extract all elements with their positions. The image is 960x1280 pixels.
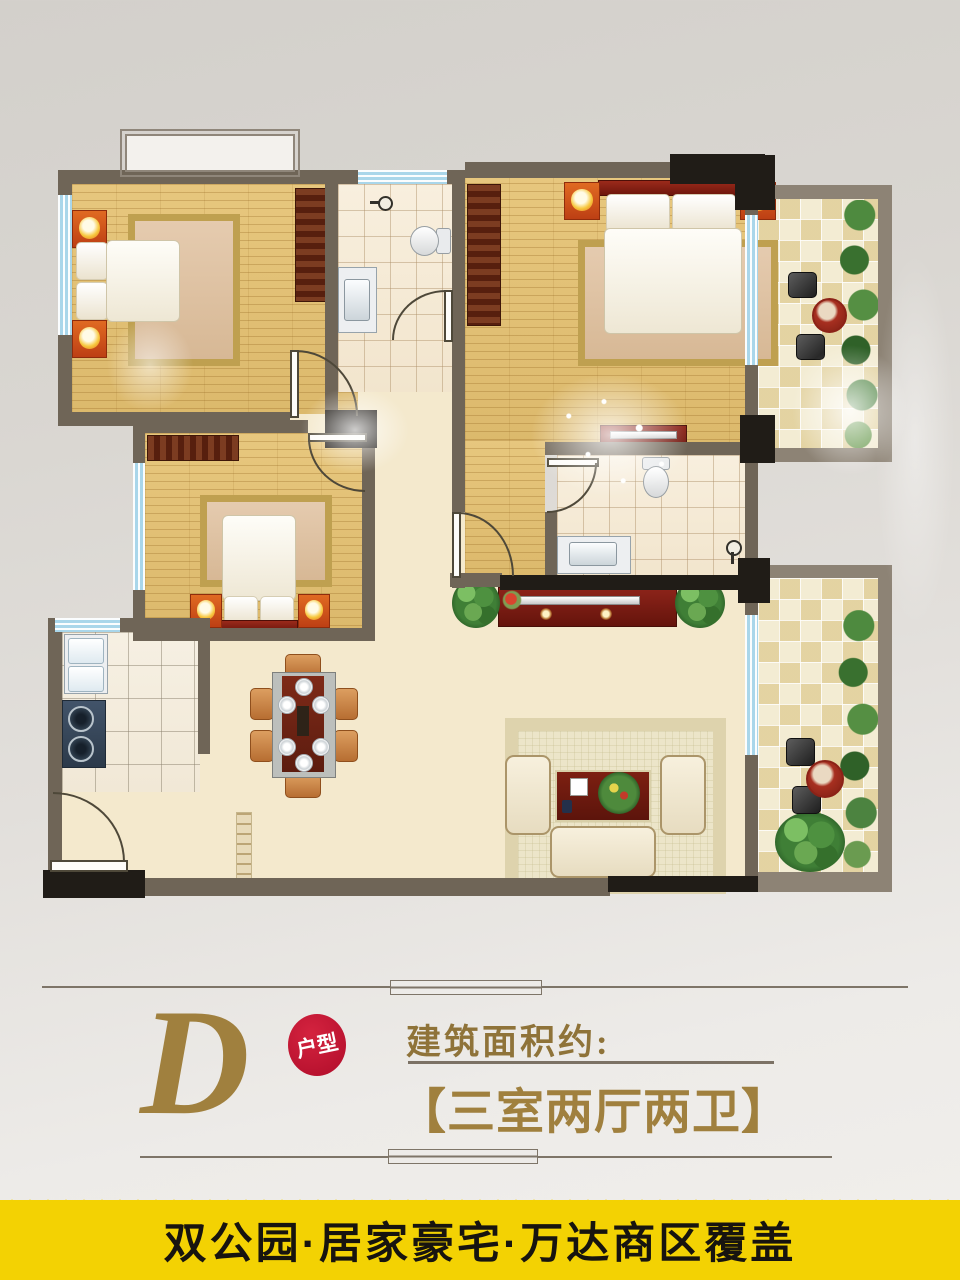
unit-letter: D [140,990,250,1134]
dining-chair [250,730,274,762]
double-bed [222,515,296,601]
plate [278,696,296,714]
armchair [660,755,706,835]
shower-head-icon [378,196,393,211]
pillow [672,194,736,232]
plate [312,738,330,756]
balcony-table [806,760,844,798]
divider-ornament [388,1149,538,1164]
sink-basin [68,638,104,664]
wardrobe [467,184,501,326]
divider-ornament [390,980,542,995]
photo-glare [280,370,430,490]
tv-stand [498,587,677,627]
area-underline [408,1061,774,1064]
cabinet-lamp [600,608,612,620]
balcony-chair [786,738,815,766]
photo-glare [860,180,960,700]
wall-column [735,155,775,210]
window [133,463,145,590]
wall-column [738,558,770,603]
window [58,195,72,335]
floor-plan [40,140,908,902]
tv-screen [518,596,640,605]
armchair [505,755,551,835]
area-label: 建筑面积约: [406,1014,611,1065]
sink-basin [569,542,617,566]
wall-column [43,870,145,898]
wardrobe [147,435,239,461]
shower-head-icon [726,540,742,556]
stove-burner [68,706,94,732]
balcony-wall [758,872,892,892]
wall [452,178,465,512]
photo-frame [570,778,588,796]
dining-chair [334,730,358,762]
double-bed [604,228,742,334]
cabinet-lamp [540,608,552,620]
table-centerpiece [297,706,309,736]
window [745,215,758,365]
layout-text: 【三室两厅两卫】 [398,1072,790,1142]
wall-column [608,876,758,892]
wall [465,162,670,178]
bay-window [125,134,295,172]
balcony-plants [775,812,845,872]
window [745,615,758,755]
dining-chair [334,688,358,720]
wall [145,878,610,896]
sink-basin [68,666,104,692]
nightstand-with-lamp [298,594,330,628]
plate [295,678,313,696]
runner-rug [236,812,252,880]
dining-chair [250,688,274,720]
banner: 双公园·居家豪宅·万达商区覆盖 [0,1200,960,1280]
wardrobe [295,188,327,302]
photo-glare [540,380,700,500]
sink-basin [344,279,370,321]
banner-text: 双公园·居家豪宅·万达商区覆盖 [164,1209,797,1271]
plate [312,696,330,714]
unit-type-badge-label: 户型 [293,1026,340,1064]
pillow [76,242,108,280]
photo-glare [90,300,210,430]
toilet [410,226,439,256]
pillow [606,194,670,232]
flower-vase [502,590,522,610]
wall-column [500,575,758,590]
wall [545,512,557,575]
flower-wreath [598,772,640,814]
unit-type-badge: 户型 [288,1014,346,1076]
nightstand-with-lamp [564,182,600,220]
plate [295,754,313,772]
wall [198,632,210,754]
stove-burner [68,736,94,762]
sofa [550,826,656,878]
window [358,170,447,184]
window [55,618,120,632]
plate [278,738,296,756]
shower-head-icon [731,552,734,564]
balcony-chair [788,272,817,298]
remote-control [562,800,572,813]
